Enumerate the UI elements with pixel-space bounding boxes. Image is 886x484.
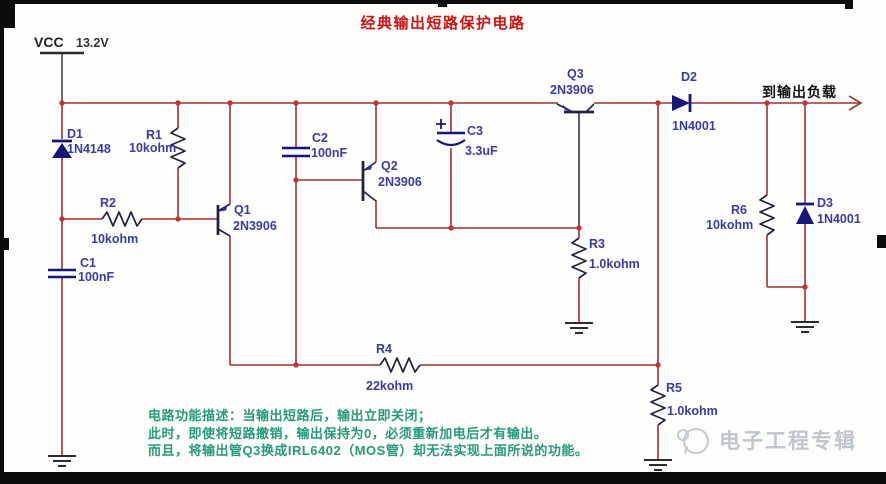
output-load-label: 到输出负载	[762, 84, 837, 100]
description-line-2: 此时，即使将短路撤销，输出保持为0，必须重新加电后才有输出。	[148, 425, 588, 443]
r5-ref-label: R5	[666, 381, 682, 395]
description-line-1: 电路功能描述：当输出短路后，输出立即关闭；	[148, 407, 588, 425]
r2-value-label: 10kohm	[91, 232, 138, 246]
r6-value-label: 10kohm	[706, 218, 753, 232]
description-line-3: 而且，将输出管Q3换成IRL6402（MOS管）却无法实现上面所说的功能。	[148, 442, 588, 460]
ground-symbol-r3	[565, 323, 593, 333]
diode-d2-symbol	[672, 94, 690, 112]
resistor-r6-symbol	[760, 195, 774, 235]
r4-value-label: 22kohm	[366, 379, 413, 393]
page-title: 经典输出短路保护电路	[0, 12, 886, 33]
vcc-terminal	[40, 53, 84, 103]
circuit-description: 电路功能描述：当输出短路后，输出立即关闭； 此时，即使将短路撤销，输出保持为0，…	[148, 407, 588, 460]
r6-ref-label: R6	[731, 203, 747, 217]
transistor-q3-symbol	[557, 104, 594, 227]
d3-ref-label: D3	[817, 196, 833, 210]
capacitor-c1-symbol	[48, 270, 76, 277]
transistor-q2-symbol	[363, 161, 376, 201]
resistor-r4-symbol	[380, 358, 420, 372]
c3-plus-sign	[436, 119, 446, 129]
r5-value-label: 1.0kohm	[667, 404, 718, 418]
r1-value-label: 10kohm	[129, 141, 176, 155]
c1-value-label: 100nF	[78, 270, 114, 284]
q1-value-label: 2N3906	[233, 219, 277, 233]
d2-value-label: 1N4001	[672, 119, 716, 133]
q2-value-label: 2N3906	[378, 175, 422, 189]
resistor-r3-symbol	[572, 238, 586, 278]
c3-value-label: 3.3uF	[465, 144, 498, 158]
c3-ref-label: C3	[467, 124, 483, 138]
r4-ref-label: R4	[376, 342, 392, 356]
ground-symbol-r5	[644, 460, 672, 470]
transistor-q1-symbol	[218, 204, 230, 236]
r3-value-label: 1.0kohm	[589, 257, 640, 271]
watermark-text: 电子工程专辑	[719, 425, 857, 455]
resistor-r5-symbol	[651, 385, 665, 425]
ground-symbol-c1	[48, 456, 76, 466]
diode-d3-symbol	[796, 204, 814, 224]
c1-ref-label: C1	[80, 256, 96, 270]
q3-value-label: 2N3906	[550, 83, 594, 97]
r2-ref-label: R2	[100, 196, 116, 210]
d3-value-label: 1N4001	[817, 212, 861, 226]
watermark-logo-icon	[674, 421, 712, 459]
vcc-voltage-label: 13.2V	[76, 36, 109, 50]
q1-emitter-arrow-icon	[220, 204, 229, 212]
d1-value-label: 1N4148	[67, 142, 111, 156]
watermark: 电子工程专辑	[674, 421, 857, 459]
r3-ref-label: R3	[589, 237, 605, 251]
capacitor-c2-symbol	[282, 148, 310, 156]
vcc-net-label: VCC	[34, 34, 64, 50]
d1-ref-label: D1	[67, 127, 83, 141]
ground-symbol-d3	[791, 322, 819, 332]
r1-ref-label: R1	[146, 128, 162, 142]
q1-ref-label: Q1	[234, 203, 251, 217]
resistor-r2-symbol	[102, 212, 142, 226]
c2-ref-label: C2	[312, 131, 328, 145]
d2-ref-label: D2	[681, 70, 697, 84]
screenshot-root: VCC 13.2V 到输出负载 D1 1N4148 R1 10kohm R2 1…	[0, 0, 886, 484]
c2-value-label: 100nF	[311, 146, 347, 160]
q3-ref-label: Q3	[567, 67, 584, 81]
q2-ref-label: Q2	[381, 159, 398, 173]
